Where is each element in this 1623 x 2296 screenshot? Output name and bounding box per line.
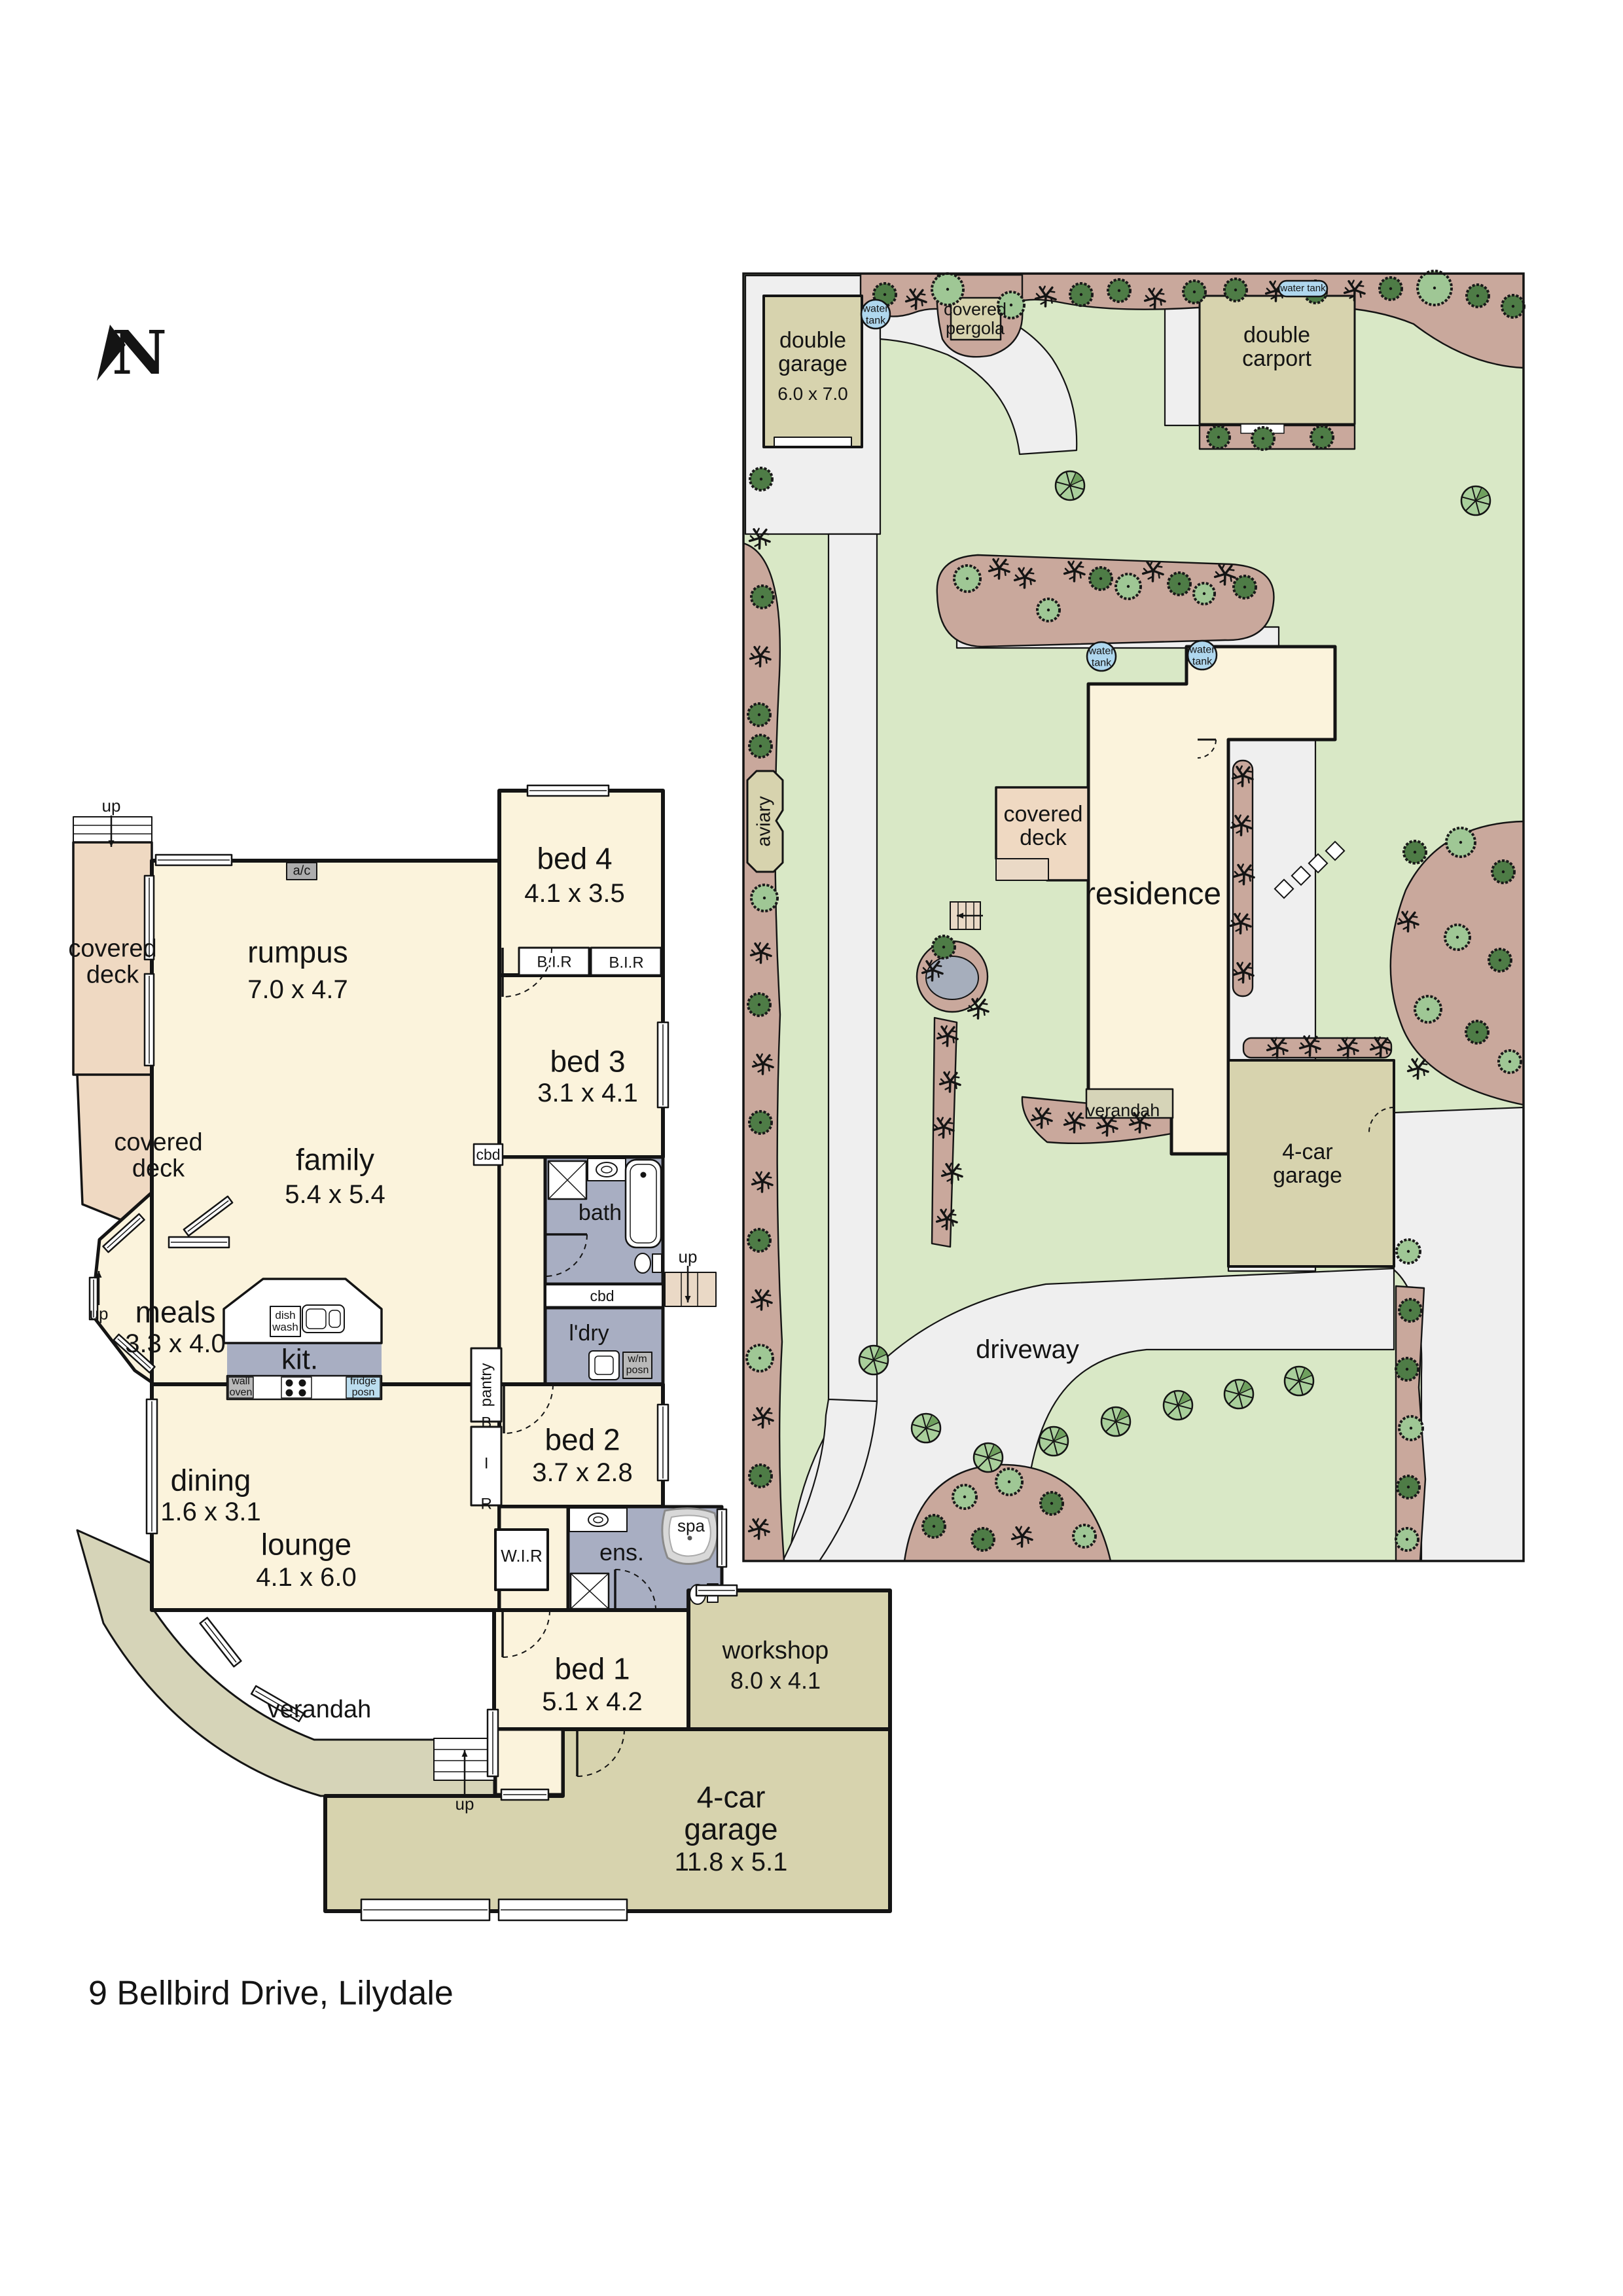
label-site-water_tank: water tank <box>1280 283 1325 294</box>
label-fp-dining-dims: 1.6 x 3.1 <box>160 1498 260 1526</box>
label-fp-up: up <box>455 1795 474 1814</box>
label-fp-meals-dims: 3.3 x 4.0 <box>125 1330 225 1357</box>
label-site-double_carport: double carport <box>1228 323 1326 370</box>
label-site-covered_deck: covered deck <box>994 802 1092 850</box>
label-fp-bed3-dims: 3.1 x 4.1 <box>537 1079 637 1107</box>
label-site-tank: tank <box>1092 658 1111 670</box>
label-fp-ac: a/c <box>293 864 311 878</box>
label-fp-up: up <box>679 1248 698 1266</box>
label-fp-wall_oven: wall oven <box>224 1376 258 1399</box>
label-fp-dish_wash: dish wash <box>268 1310 304 1333</box>
label-fp-rumpus-name: rumpus <box>247 937 348 969</box>
label-site-tank: tank <box>1192 657 1212 668</box>
label-site-water: water <box>1189 645 1215 656</box>
label-fp-bir_v: B I R <box>478 1414 494 1516</box>
label-fp-bed1-dims: 5.1 x 4.2 <box>542 1688 642 1715</box>
label-fp-cbd: cbd <box>590 1288 614 1304</box>
fp-deck-steps <box>73 817 152 843</box>
label-site-water: water <box>1088 647 1114 658</box>
room-hall <box>499 1157 545 1384</box>
label-fp-spa: spa <box>677 1517 705 1535</box>
label-fp-garage-dims: 11.8 x 5.1 <box>675 1848 788 1876</box>
garage-door <box>774 437 851 446</box>
label-site-driveway: driveway <box>976 1336 1079 1363</box>
label-fp-up: up <box>90 1305 109 1323</box>
label-compass-north_label: N <box>112 321 167 386</box>
label-fp-pantry: pantry <box>478 1363 494 1407</box>
label-site-residence: residence <box>1085 878 1221 912</box>
toilet <box>635 1253 651 1273</box>
label-fp-meals-name: meals <box>135 1297 216 1329</box>
label-fp-garage-name: 4-car garage <box>656 1781 806 1845</box>
label-fp-up: up <box>102 797 121 816</box>
label-site-double_garage-name: double garage <box>759 329 867 376</box>
label-fp-covered_deck: covered deck <box>60 936 165 989</box>
room-bed1-ext <box>495 1729 563 1795</box>
label-fp-wm: w/m posn <box>620 1354 654 1376</box>
label-fp-kit: kit. <box>281 1345 318 1376</box>
label-fp-covered_deck: covered deck <box>103 1130 214 1183</box>
label-fp-workshop-name: workshop <box>722 1638 829 1664</box>
label-fp-family-dims: 5.4 x 5.4 <box>285 1181 385 1208</box>
label-fp-family-name: family <box>296 1144 374 1176</box>
label-fp-fridge: fridge posn <box>345 1376 382 1399</box>
label-fp-cbd: cbd <box>476 1147 500 1162</box>
label-fp-ldry: l'dry <box>569 1321 609 1345</box>
label-fp-bir: B.I.R <box>537 954 571 970</box>
label-fp-bir: B.I.R <box>609 954 643 971</box>
label-site-covered_pergola: covered pergola <box>935 300 1016 337</box>
label-fp-dining-name: dining <box>171 1465 251 1497</box>
label-fp-bed1-name: bed 1 <box>554 1653 630 1685</box>
floorplan-page: N9 Bellbird Drive, Lilydaleupcovered dec… <box>0 0 1623 2296</box>
label-fp-lounge-dims: 4.1 x 6.0 <box>256 1564 356 1591</box>
label-site-tank: tank <box>866 316 885 327</box>
label-fp-rumpus-dims: 7.0 x 4.7 <box>247 976 348 1003</box>
label-site-double_garage-dims: 6.0 x 7.0 <box>777 384 847 404</box>
label-fp-workshop-dims: 8.0 x 4.1 <box>730 1668 821 1693</box>
label-fp-lounge-name: lounge <box>261 1529 351 1561</box>
label-site-verandah: verandah <box>1086 1102 1160 1121</box>
label-fp-bed4-name: bed 4 <box>537 843 612 875</box>
label-fp-ens: ens. <box>599 1540 644 1565</box>
cooktop <box>281 1377 312 1398</box>
label-fp-bath: bath <box>579 1201 622 1225</box>
label-fp-verandah: verandah <box>268 1696 371 1723</box>
label-site-aviary: aviary <box>755 796 775 846</box>
label-fp-bed2-dims: 3.7 x 2.8 <box>532 1459 632 1486</box>
label-site-water: water <box>863 304 888 315</box>
pond <box>926 956 978 999</box>
label-site-garage4-name: 4-car garage <box>1260 1140 1355 1187</box>
label-address: 9 Bellbird Drive, Lilydale <box>88 1975 454 2011</box>
label-fp-bed3-name: bed 3 <box>550 1046 625 1078</box>
label-fp-wir: W.I.R <box>501 1547 543 1566</box>
site-plan <box>743 271 1524 1561</box>
site-deck-step <box>996 859 1048 880</box>
label-fp-bed4-dims: 4.1 x 3.5 <box>524 880 624 907</box>
label-fp-bed2-name: bed 2 <box>544 1424 620 1456</box>
